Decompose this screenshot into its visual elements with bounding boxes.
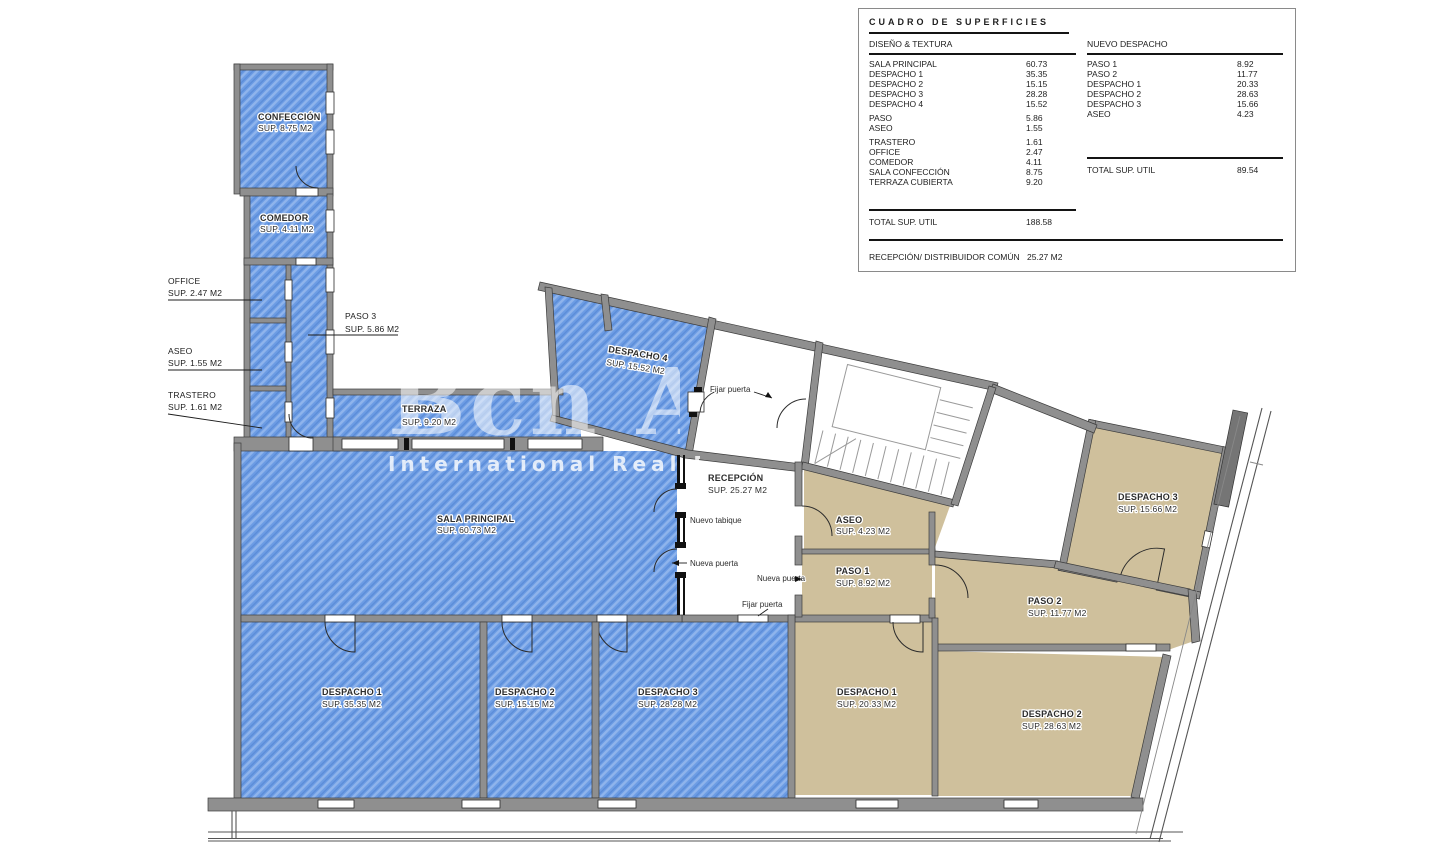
surface-table: CUADRO DE SUPERFICIES DISEÑO & TEXTURA S… — [858, 8, 1296, 272]
label-aseo-left: ASEO SUP. 1.55 M2 — [168, 346, 222, 368]
table-row: DESPACHO 215.15 — [869, 79, 1076, 89]
table-row: DESPACHO 120.33 — [1087, 79, 1283, 89]
table-footer: RECEPCIÓN/ DISTRIBUIDOR COMÚN 25.27 M2 — [869, 252, 1283, 262]
table-row: ASEO1.55 — [869, 123, 1076, 133]
table-row: ASEO4.23 — [1087, 109, 1283, 119]
table-row: TRASTERO1.61 — [869, 137, 1076, 147]
table-row: DESPACHO 328.28 — [869, 89, 1076, 99]
table-row: PASO5.86 — [869, 113, 1076, 123]
room-trastero — [250, 391, 286, 437]
label-paso3: PASO 3 SUP. 5.86 M2 — [345, 311, 399, 334]
label-comedor: COMEDOR SUP. 4.11 M2 — [260, 213, 314, 234]
room-aseo-left — [250, 323, 286, 386]
table-left-total: TOTAL SUP. UTIL188.58 — [869, 217, 1076, 227]
annotation-nueva-puerta-1: Nueva puerta — [690, 559, 739, 568]
table-left-header: DISEÑO & TEXTURA — [869, 39, 952, 49]
watermark: Bcn Advisors International Real Estate — [388, 348, 1106, 476]
table-row: OFFICE2.47 — [869, 147, 1076, 157]
table-right-total: TOTAL SUP. UTIL89.54 — [1087, 165, 1283, 175]
stair-door-arc — [777, 399, 806, 428]
room-despacho2-blue — [487, 622, 592, 798]
table-title: CUADRO DE SUPERFICIES — [869, 17, 1049, 27]
annotation-fijar-puerta-bottom: Fijar puerta — [742, 600, 783, 609]
room-paso3 — [291, 265, 327, 437]
table-left-rows: SALA PRINCIPAL60.73 DESPACHO 135.35 DESP… — [869, 59, 1076, 187]
floor-plan-page: Bcn Advisors International Real Estate C… — [0, 0, 1447, 860]
watermark-brand: Bcn Advisors — [388, 348, 1106, 456]
table-row: PASO 18.92 — [1087, 59, 1283, 69]
table-row: DESPACHO 415.52 — [869, 99, 1076, 109]
label-office: OFFICE SUP. 2.47 M2 — [168, 276, 222, 298]
table-row: COMEDOR4.11 — [869, 157, 1076, 167]
table-right-rows: PASO 18.92 PASO 211.77 DESPACHO 120.33 D… — [1087, 59, 1283, 119]
table-row: PASO 211.77 — [1087, 69, 1283, 79]
table-row: TERRAZA CUBIERTA9.20 — [869, 177, 1076, 187]
table-row: DESPACHO 135.35 — [869, 69, 1076, 79]
annotation-nuevo-tabique: Nuevo tabique — [690, 516, 742, 525]
table-row: SALA CONFECCIÓN8.75 — [869, 167, 1076, 177]
table-right-header: NUEVO DESPACHO — [1087, 39, 1168, 49]
table-row: DESPACHO 315.66 — [1087, 99, 1283, 109]
table-row: SALA PRINCIPAL60.73 — [869, 59, 1076, 69]
annotation-fijar-puerta-top: Fijar puerta — [710, 385, 751, 394]
table-row: DESPACHO 228.63 — [1087, 89, 1283, 99]
label-trastero: TRASTERO SUP. 1.61 M2 — [168, 390, 222, 412]
label-recepcion: RECEPCIÓN SUP. 25.27 M2 — [708, 472, 767, 495]
room-despacho1-blue — [241, 622, 480, 798]
room-office — [250, 265, 286, 318]
